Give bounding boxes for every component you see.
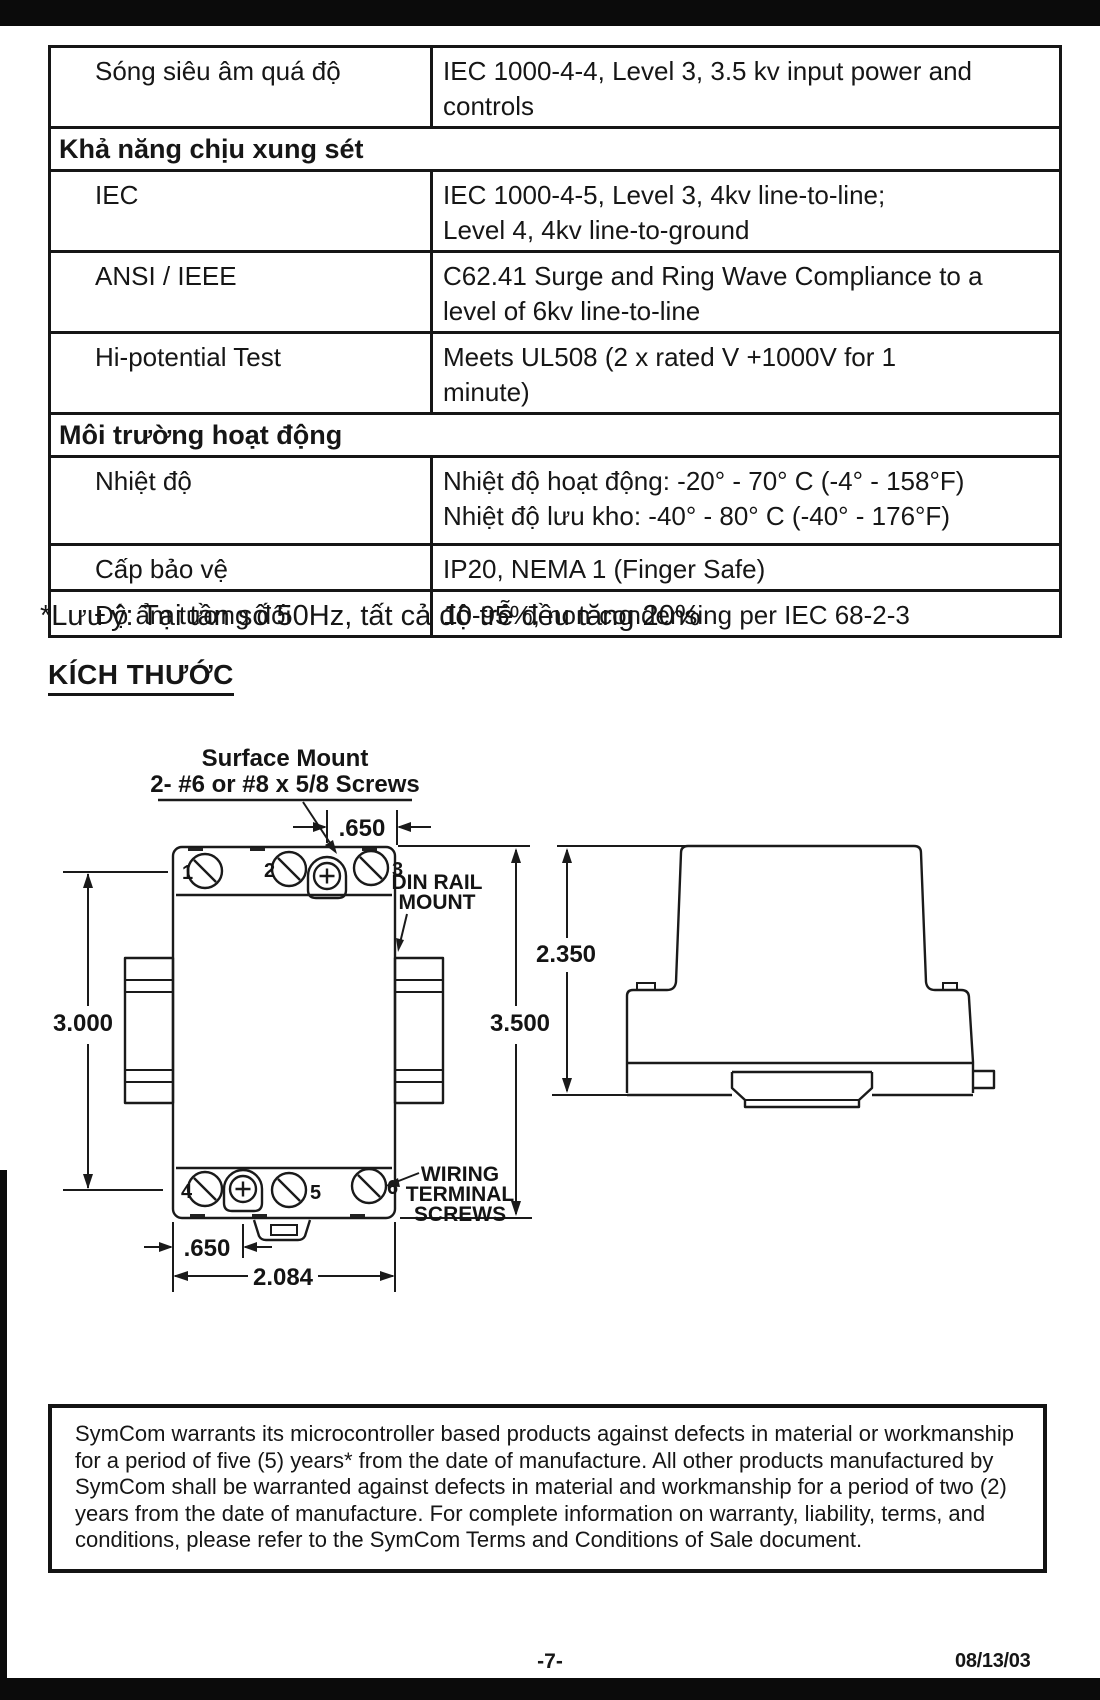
din-rail-tab-right	[395, 958, 443, 1103]
din-rail-mount-label-line2: MOUNT	[399, 891, 476, 914]
mounting-keyhole-bottom	[224, 1170, 262, 1211]
front-view-outline	[173, 847, 395, 1218]
din-rail-mount-leader-arrow	[396, 914, 407, 952]
dim-2350-label: 2.350	[536, 941, 596, 968]
dim-650-top-label: .650	[339, 815, 386, 842]
screw-number-4: 4	[181, 1181, 193, 1203]
warranty-line: conditions, please refer to the SymCom T…	[75, 1527, 1025, 1554]
surface-mount-label-line2: 2- #6 or #8 x 5/8 Screws	[150, 771, 420, 798]
dim-3000-label: 3.000	[53, 1010, 113, 1037]
warranty-line: for a period of five (5) years* from the…	[75, 1448, 1025, 1475]
footer-date: 08/13/03	[955, 1650, 1030, 1673]
screw-number-2: 2	[264, 860, 275, 882]
side-view-outline	[627, 846, 994, 1107]
dim-650-bottom-label: .650	[184, 1235, 231, 1262]
wiring-label-line3: SCREWS	[414, 1203, 506, 1226]
page-number: -7-	[0, 1650, 1100, 1674]
warranty-box: SymCom warrants its microcontroller base…	[48, 1404, 1047, 1573]
warranty-line: SymCom shall be warranted against defect…	[75, 1474, 1025, 1501]
dim-3000: 3.000	[53, 872, 168, 1190]
mounting-keyhole-top	[308, 857, 346, 898]
scan-artifact-bottom	[0, 1678, 1100, 1700]
scan-artifact-top	[0, 0, 1100, 26]
manual-page: Sóng siêu âm quá độ IEC 1000-4-4, Level …	[0, 0, 1100, 1700]
din-rail-tab-left	[125, 958, 173, 1103]
dim-2350: 2.350	[536, 848, 630, 1095]
screw-number-5: 5	[310, 1182, 321, 1204]
dim-2084-label: 2.084	[253, 1264, 314, 1291]
screw-number-1: 1	[182, 862, 193, 884]
warranty-line: years from the date of manufacture. For …	[75, 1501, 1025, 1528]
dim-650-top: .650	[293, 810, 431, 845]
surface-mount-label-line1: Surface Mount	[202, 745, 369, 772]
warranty-line: SymCom warrants its microcontroller base…	[75, 1421, 1025, 1448]
terminal-screws	[188, 851, 388, 1207]
scan-artifact-left	[0, 1170, 7, 1700]
din-latch-front	[254, 1220, 310, 1240]
dim-3500-label: 3.500	[490, 1010, 550, 1037]
